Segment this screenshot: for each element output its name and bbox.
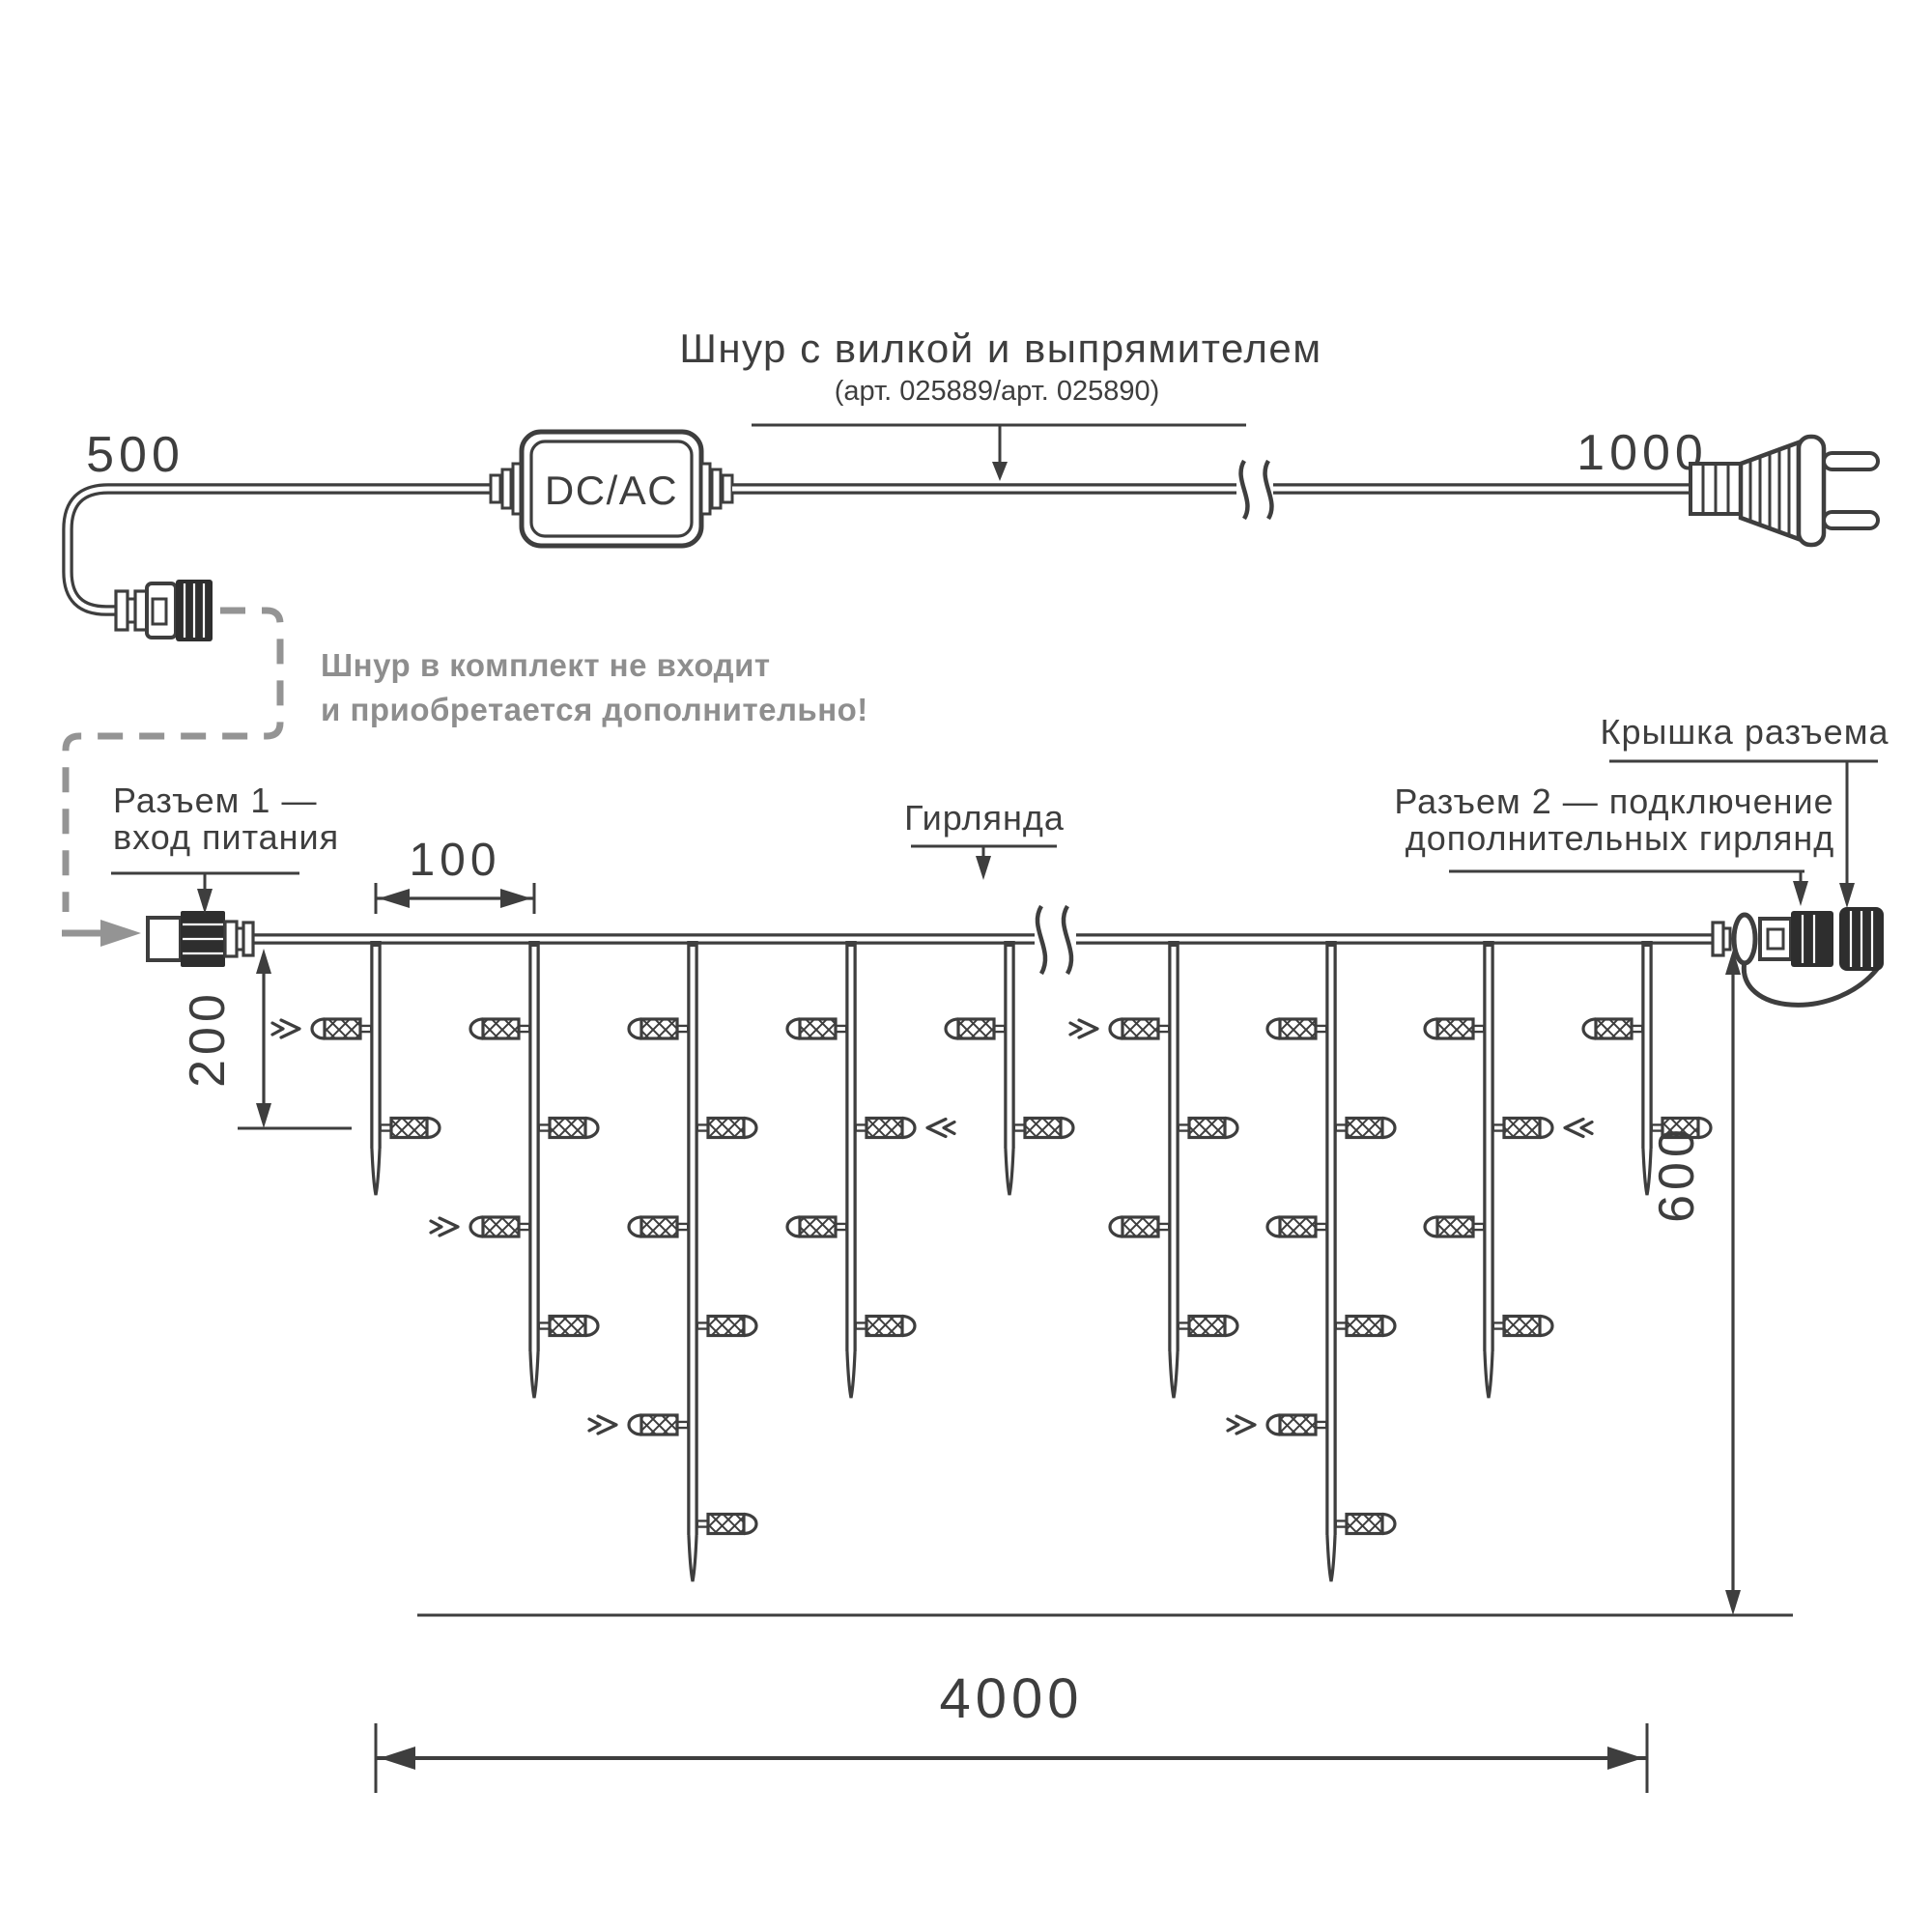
glow-arrow-icon [1070, 1020, 1097, 1037]
dim-100-label: 100 [409, 835, 500, 886]
lamp [1110, 1217, 1158, 1236]
cord-label: Шнур с вилкой и выпрямителем (арт. 02588… [679, 326, 1321, 481]
icicle-drop [1425, 941, 1552, 1398]
icicle-drop [946, 941, 1073, 1195]
garland-break-icon [1037, 906, 1045, 974]
garland-connector1 [148, 911, 253, 967]
connector2-label-line2: дополнительных гирлянд [1406, 818, 1835, 858]
lamp [787, 1217, 836, 1236]
lamp [470, 1019, 519, 1038]
lamp [1267, 1019, 1316, 1038]
note-line1: Шнур в комплект не входит [321, 647, 771, 683]
glow-arrow-icon [431, 1218, 458, 1236]
power-cord-assembly: 500 DC/AC [68, 326, 1878, 641]
note-line2: и приобретается дополнительно! [321, 692, 868, 727]
glow-arrow-icon [927, 1120, 954, 1137]
lamp [708, 1119, 756, 1138]
plug-prong [1824, 512, 1878, 528]
cord-label-line1: Шнур с вилкой и выпрямителем [679, 326, 1321, 371]
lamp [946, 1019, 994, 1038]
lamp [787, 1019, 836, 1038]
dc-ac-converter: DC/AC [491, 432, 732, 546]
garland-wiring-diagram: 500 DC/AC [0, 0, 1932, 1932]
icicle-drop [787, 941, 915, 1398]
cord-label-line2: (арт. 025889/арт. 025890) [835, 376, 1160, 407]
icicle-drop [1267, 941, 1395, 1581]
glow-arrow-icon [272, 1020, 299, 1037]
lamp [1583, 1019, 1632, 1038]
garland-label: Гирлянда [904, 798, 1065, 880]
dim-200-label: 200 [180, 989, 236, 1088]
icicle-tip [689, 1535, 696, 1581]
dim-500-label: 500 [86, 427, 185, 483]
lamp [1347, 1515, 1395, 1534]
icicle-tip [372, 1149, 380, 1195]
lamp [550, 1119, 598, 1138]
icicle-tip [847, 1351, 855, 1398]
lamp [867, 1119, 915, 1138]
lamp [470, 1217, 519, 1236]
glow-arrow-icon [589, 1416, 616, 1434]
icicle-tip [530, 1351, 538, 1398]
lamp [1504, 1119, 1552, 1138]
lamp [550, 1317, 598, 1336]
icicle-drop [470, 941, 598, 1398]
icicle-drop [312, 941, 440, 1195]
route-arrow-icon [100, 920, 141, 947]
icicle-tip [1170, 1351, 1178, 1398]
lamp [1267, 1217, 1316, 1236]
connector2-label: Разъем 2 — подключение дополнительных ги… [1394, 781, 1834, 906]
glow-arrow-icon [1565, 1120, 1592, 1137]
dim-1000-label: 1000 [1577, 425, 1708, 481]
lamp [867, 1317, 915, 1336]
plug-prong [1824, 453, 1878, 469]
cord-connector [116, 580, 213, 641]
cord-left-wire [68, 489, 491, 611]
lamp [312, 1019, 360, 1038]
dim-4000-label: 4000 [939, 1667, 1083, 1730]
glow-arrow-icon [1228, 1416, 1255, 1434]
lamp [1504, 1317, 1552, 1336]
dim-600-label: 600 [1649, 1124, 1705, 1223]
lamp [629, 1217, 677, 1236]
lamp [1425, 1019, 1473, 1038]
lamp [1189, 1317, 1237, 1336]
cap-label-text: Крышка разъема [1601, 712, 1889, 752]
connector2-label-line1: Разъем 2 — подключение [1394, 781, 1833, 821]
lamp [1347, 1317, 1395, 1336]
dim-600: 600 [1649, 950, 1741, 1615]
cord-break-icon [1241, 461, 1248, 519]
icicle-tip [1006, 1149, 1013, 1195]
lamp [1425, 1217, 1473, 1236]
lamp [1347, 1119, 1395, 1138]
garland-connector2 [1713, 907, 1884, 1005]
dim-100: 100 [376, 835, 534, 914]
lamp [629, 1415, 677, 1435]
garland-label-text: Гирлянда [904, 798, 1065, 838]
lamp [391, 1119, 440, 1138]
lamp [1189, 1119, 1237, 1138]
connector1-label: Разъем 1 — вход питания [111, 781, 339, 914]
connector1-label-line1: Разъем 1 — [113, 781, 317, 820]
icicle-drop [629, 941, 756, 1581]
diagram-page: 500 DC/AC [0, 0, 1932, 1932]
lamp [1110, 1019, 1158, 1038]
converter-label: DC/AC [545, 468, 678, 513]
lamp [629, 1019, 677, 1038]
icicle-tip [1327, 1535, 1335, 1581]
icicle-tip [1485, 1351, 1492, 1398]
mains-plug [1690, 437, 1878, 545]
lamp [1267, 1415, 1316, 1435]
connector2-ring [1734, 915, 1755, 963]
not-included-route: Шнур в комплект не входит и приобретаетс… [62, 611, 868, 947]
icicle-drops [272, 941, 1711, 1581]
lamp [708, 1515, 756, 1534]
icicle-drop [1110, 941, 1237, 1398]
dim-4000: 4000 [376, 1667, 1647, 1793]
connector1-label-line2: вход питания [113, 817, 339, 857]
lamp [1025, 1119, 1073, 1138]
lamp [708, 1317, 756, 1336]
